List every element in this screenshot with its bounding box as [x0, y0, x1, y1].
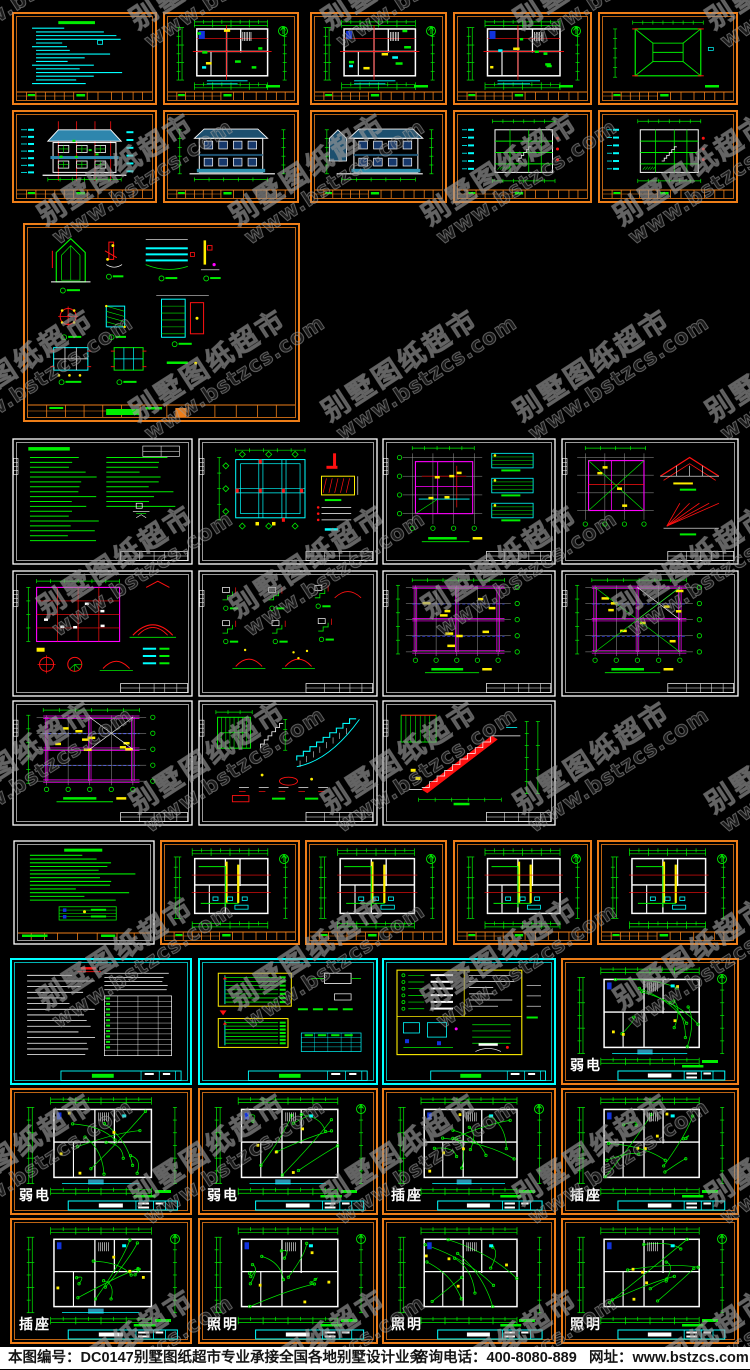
sheet-struct-stair-1	[198, 700, 378, 826]
sheet-drawing-struct-notes	[12, 438, 193, 565]
discipline-label: 弱电	[207, 1188, 239, 1202]
footer-phone: 咨询电话：400-8080-889	[414, 1347, 577, 1369]
watermark: 别墅图纸超市www.bstzcs.com	[318, 289, 521, 445]
sheet-drawing-arch-section-1	[453, 110, 592, 203]
sheet-arch-plan-1f	[163, 12, 299, 105]
sheet-drawing-struct-beam-1	[382, 570, 556, 697]
sheet-plumb-plan-roof	[597, 840, 738, 945]
sheet-arch-plan-2f	[310, 12, 447, 105]
watermark: 别墅图纸超市www.bstzcs.com	[702, 289, 750, 445]
sheet-elec-legend	[382, 958, 556, 1085]
discipline-label: 弱电	[19, 1188, 51, 1202]
sheet-elec-weak-2: 弱电	[10, 1088, 192, 1215]
sheet-drawing-arch-elev-front	[12, 110, 157, 203]
sheet-drawing-arch-notes	[12, 12, 157, 105]
watermark-url: www.bstzcs.com	[333, 312, 521, 444]
footer-slogan: 别墅图纸超市专业承接全国各地别墅设计业务	[134, 1347, 424, 1369]
sheet-arch-roof-plan	[598, 12, 738, 105]
discipline-label: 插座	[570, 1188, 602, 1202]
sheet-drawing-struct-stair-2	[382, 700, 556, 826]
watermark-brand: 别墅图纸超市	[318, 289, 509, 427]
sheet-struct-frame-1	[382, 438, 556, 565]
watermark: 别墅图纸超市www.bstzcs.com	[510, 289, 713, 445]
sheet-drawing-struct-frame-1	[382, 438, 556, 565]
sheet-drawing-plumb-plan-3f	[453, 840, 592, 945]
sheet-elec-system	[198, 958, 378, 1085]
sheet-drawing-arch-plan-1f	[163, 12, 299, 105]
sheet-struct-notes	[12, 438, 193, 565]
sheet-drawing-arch-elev-side	[310, 110, 447, 203]
sheet-arch-section-2	[598, 110, 738, 203]
sheet-plumb-plan-1f	[160, 840, 300, 945]
sheet-elec-socket-2: 插座	[561, 1088, 739, 1215]
sheet-drawing-arch-details	[23, 223, 300, 422]
footer-sheet-number: 本图编号：DC0147	[8, 1347, 134, 1369]
sheet-plumb-plan-2f	[305, 840, 447, 945]
sheet-arch-elev-front	[12, 110, 157, 203]
watermark-brand: 别墅图纸超市	[702, 289, 750, 427]
discipline-label: 插座	[19, 1317, 51, 1331]
sheet-struct-beam-2	[561, 570, 739, 697]
sheet-drawing-struct-stair-1	[198, 700, 378, 826]
sheet-drawing-arch-section-2	[598, 110, 738, 203]
sheet-arch-notes	[12, 12, 157, 105]
sheet-drawing-arch-plan-2f	[310, 12, 447, 105]
discipline-label: 照明	[391, 1317, 423, 1331]
sheet-drawing-plumb-plan-roof	[597, 840, 738, 945]
watermark-url: www.bstzcs.com	[717, 312, 750, 444]
sheet-drawing-struct-details	[198, 570, 378, 697]
sheet-struct-beam-3	[12, 700, 193, 826]
sheet-struct-foundation	[198, 438, 378, 565]
sheet-struct-stair-2	[382, 700, 556, 826]
discipline-label: 照明	[570, 1317, 602, 1331]
footer-website: 网址：www.bstzcs.com	[589, 1347, 749, 1369]
watermark-brand: 别墅图纸超市	[702, 681, 750, 819]
sheet-drawing-elec-notes	[10, 958, 192, 1085]
sheet-plumb-notes	[13, 840, 155, 945]
sheet-struct-beam-1	[382, 570, 556, 697]
sheet-drawing-struct-beam-2	[561, 570, 739, 697]
discipline-label: 插座	[391, 1188, 423, 1202]
discipline-label: 弱电	[570, 1058, 602, 1072]
sheet-drawing-struct-frame-2	[561, 438, 739, 565]
sheet-elec-light-2: 照明	[382, 1218, 556, 1344]
sheet-plumb-plan-3f	[453, 840, 592, 945]
sheet-drawing-plumb-plan-2f	[305, 840, 447, 945]
sheet-elec-notes	[10, 958, 192, 1085]
sheet-struct-frame-2	[561, 438, 739, 565]
sheet-drawing-arch-elev-back	[163, 110, 299, 203]
sheet-elec-light-3: 照明	[561, 1218, 739, 1344]
sheet-elec-socket-1: 插座	[382, 1088, 556, 1215]
sheet-drawing-plumb-plan-1f	[160, 840, 300, 945]
watermark-brand: 别墅图纸超市	[510, 289, 701, 427]
sheet-elec-weak-1: 弱电	[561, 958, 739, 1085]
sheet-elec-socket-3: 插座	[10, 1218, 192, 1344]
sheet-elec-light-1: 照明	[198, 1218, 378, 1344]
cad-sheet-montage: 弱电弱电弱电插座插座插座照明照明照明 别墅图纸超市www.bstzcs.com别…	[0, 0, 750, 1369]
sheet-drawing-struct-beam-3	[12, 700, 193, 826]
watermark-url: www.bstzcs.com	[525, 312, 713, 444]
sheet-drawing-struct-frame-3	[12, 570, 193, 697]
sheet-arch-plan-3f	[453, 12, 592, 105]
sheet-struct-details	[198, 570, 378, 697]
sheet-arch-elev-back	[163, 110, 299, 203]
sheet-drawing-struct-foundation	[198, 438, 378, 565]
sheet-struct-frame-3	[12, 570, 193, 697]
sheet-drawing-arch-roof-plan	[598, 12, 738, 105]
sheet-elec-weak-3: 弱电	[198, 1088, 378, 1215]
sheet-drawing-plumb-notes	[13, 840, 155, 945]
sheet-arch-elev-side	[310, 110, 447, 203]
sheet-drawing-elec-system	[198, 958, 378, 1085]
watermark-url: www.bstzcs.com	[717, 704, 750, 836]
sheet-arch-section-1	[453, 110, 592, 203]
watermark: 别墅图纸超市www.bstzcs.com	[702, 681, 750, 837]
sheet-arch-details	[23, 223, 300, 422]
sheet-drawing-elec-legend	[382, 958, 556, 1085]
footer-bar: 本图编号：DC0147 别墅图纸超市专业承接全国各地别墅设计业务 咨询电话：40…	[0, 1347, 750, 1369]
sheet-drawing-arch-plan-3f	[453, 12, 592, 105]
discipline-label: 照明	[207, 1317, 239, 1331]
